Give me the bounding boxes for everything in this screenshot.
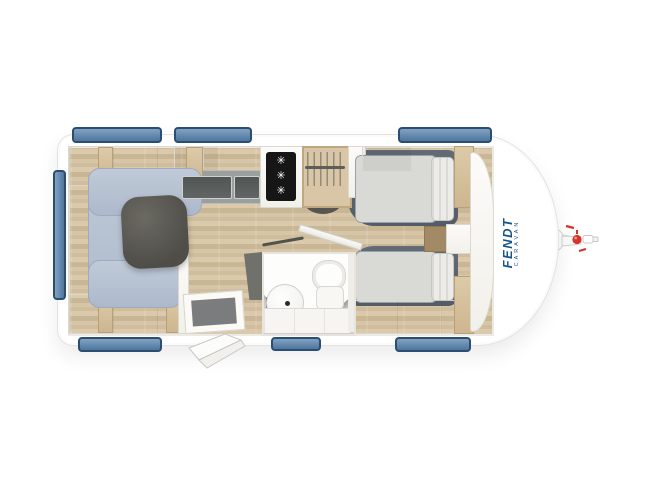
brand-name: FENDT — [501, 218, 514, 269]
kitchen-sink-basin — [182, 176, 232, 199]
window-top-2 — [174, 127, 252, 143]
bathroom — [262, 252, 356, 336]
red-marker-icon — [566, 226, 574, 228]
dining-table — [120, 194, 190, 269]
clothes-hangers-icon — [307, 152, 344, 186]
coupling-handle — [572, 235, 581, 244]
nightstand-wood — [424, 226, 448, 252]
brand-logo: FENDT CARAVAN — [498, 203, 524, 283]
red-marker-icon — [579, 249, 586, 251]
entrance-mat — [191, 297, 237, 326]
bed-mattress-bottom — [355, 251, 437, 303]
bed-pillow-top — [431, 157, 454, 221]
stove-burner-icon: ✳ — [276, 156, 285, 167]
bathroom-bench — [264, 308, 350, 333]
entrance-mat-frame — [183, 290, 246, 334]
stove-burner-icon: ✳ — [276, 186, 285, 197]
entry-step — [185, 330, 251, 376]
stove-cooktop: ✳ ✳ ✳ — [266, 152, 296, 201]
window-bottom-2 — [271, 337, 321, 351]
bed-pillow-bottom — [431, 253, 454, 301]
bathroom-wall — [348, 254, 354, 332]
window-top-1 — [72, 127, 162, 143]
window-top-3 — [398, 127, 492, 143]
floorplan-canvas: FENDT CARAVAN ✳ ✳ ✳ — [0, 0, 650, 487]
window-rear — [53, 170, 66, 300]
kitchen-sink-basin — [234, 176, 260, 199]
toilet-base — [316, 286, 344, 310]
window-bottom-1 — [78, 337, 162, 352]
stove-burner-icon: ✳ — [276, 171, 285, 182]
washbasin-drain-icon — [285, 301, 290, 306]
wardrobe-rail — [305, 166, 345, 169]
window-bottom-3 — [395, 337, 471, 352]
bed-bench-bottom — [352, 300, 460, 334]
brand-sub: CARAVAN — [514, 220, 521, 267]
